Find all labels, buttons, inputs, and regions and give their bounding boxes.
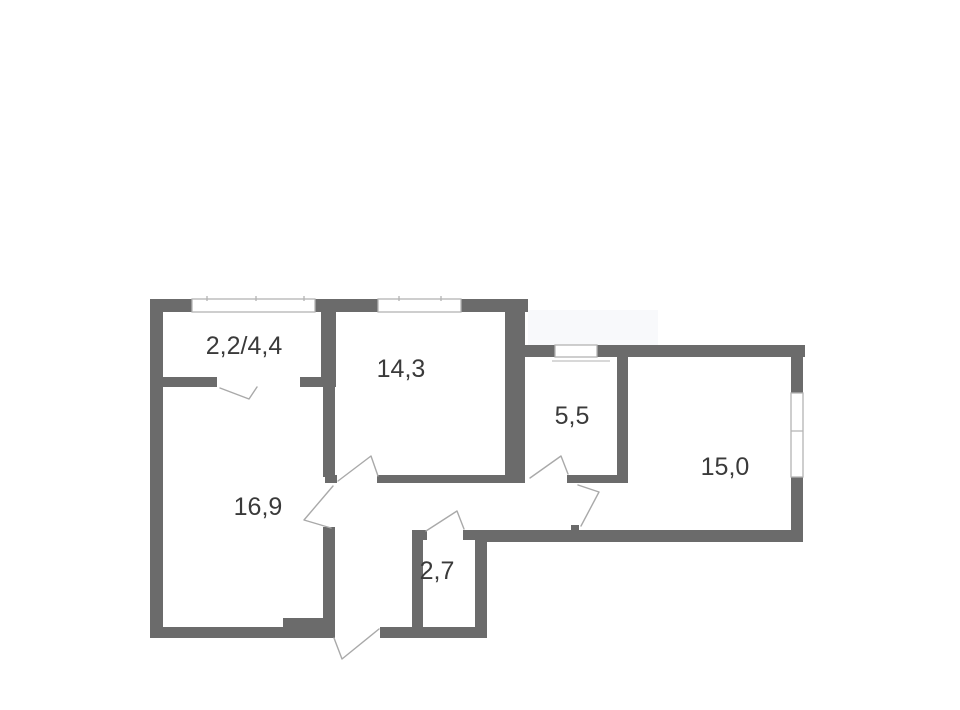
room-area-label-balcony: 2,2/4,4 (206, 332, 283, 360)
floor-plan-canvas: 2,2/4,4 14,3 5,5 15,0 16,9 2,7 (0, 0, 960, 710)
windows (192, 296, 803, 477)
room-15-0-door (578, 485, 599, 526)
balcony-window (192, 299, 315, 312)
kitchen-5-5-window (555, 345, 597, 357)
room-area-label-2-7: 2,7 (420, 557, 455, 585)
room-area-label-16-9: 16,9 (234, 493, 283, 521)
balcony-door (220, 387, 257, 399)
room-2-7-door (426, 511, 464, 531)
room-area-label-5-5: 5,5 (555, 402, 590, 430)
entrance-door (334, 629, 379, 659)
room-15-0-window (791, 393, 803, 477)
room-14-3-door (338, 456, 378, 481)
room-area-label-14-3: 14,3 (377, 355, 426, 383)
kitchen-5-5-door (530, 456, 568, 478)
room-14-3-window (378, 299, 461, 312)
neighbor-area-hint (528, 310, 658, 345)
room-area-label-15-0: 15,0 (701, 453, 750, 481)
room-16-9-door (304, 486, 333, 528)
doors (220, 387, 599, 659)
floor-plan: 2,2/4,4 14,3 5,5 15,0 16,9 2,7 (0, 0, 960, 710)
